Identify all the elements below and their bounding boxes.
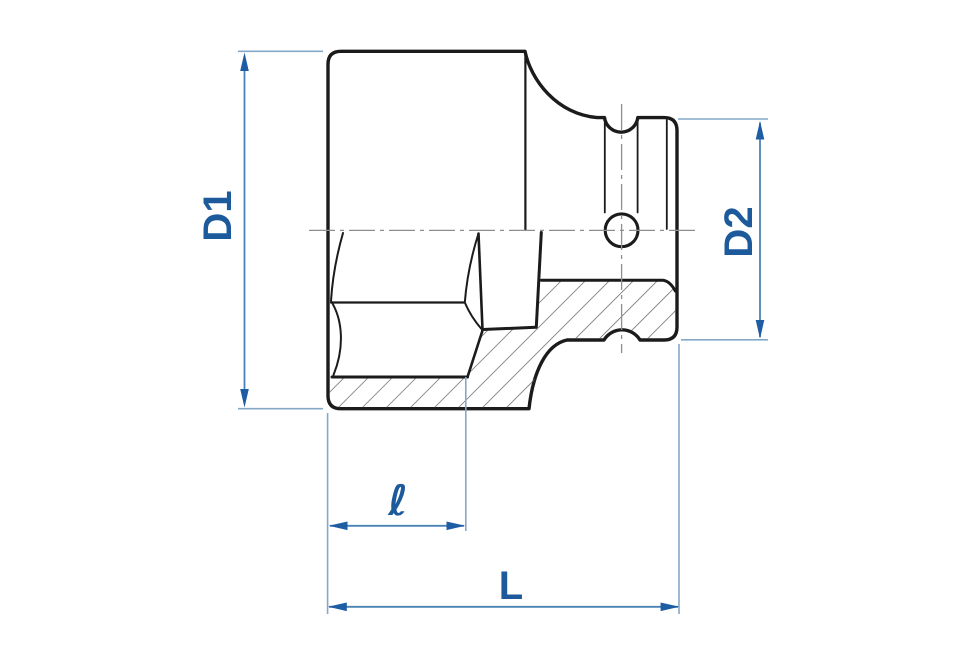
drawing-svg: D1 D2 ℓ L	[0, 0, 960, 672]
length-arrow-right	[661, 603, 680, 612]
length-arrow-left	[328, 603, 347, 612]
d2-label: D2	[717, 206, 761, 257]
d1-arrow-down	[240, 389, 249, 408]
socket-technical-drawing: D1 D2 ℓ L	[0, 0, 960, 672]
dimension-d1: D1	[196, 51, 323, 408]
length-label: L	[499, 564, 523, 608]
dimension-d2: D2	[678, 119, 768, 340]
d2-arrow-up	[756, 121, 765, 140]
d1-label: D1	[196, 190, 240, 241]
inner-depth-arrow-left	[329, 522, 348, 531]
inner-depth-label: ℓ	[387, 476, 408, 525]
inner-depth-arrow-right	[447, 522, 466, 531]
d2-arrow-down	[756, 320, 765, 339]
d1-arrow-up	[240, 53, 249, 72]
